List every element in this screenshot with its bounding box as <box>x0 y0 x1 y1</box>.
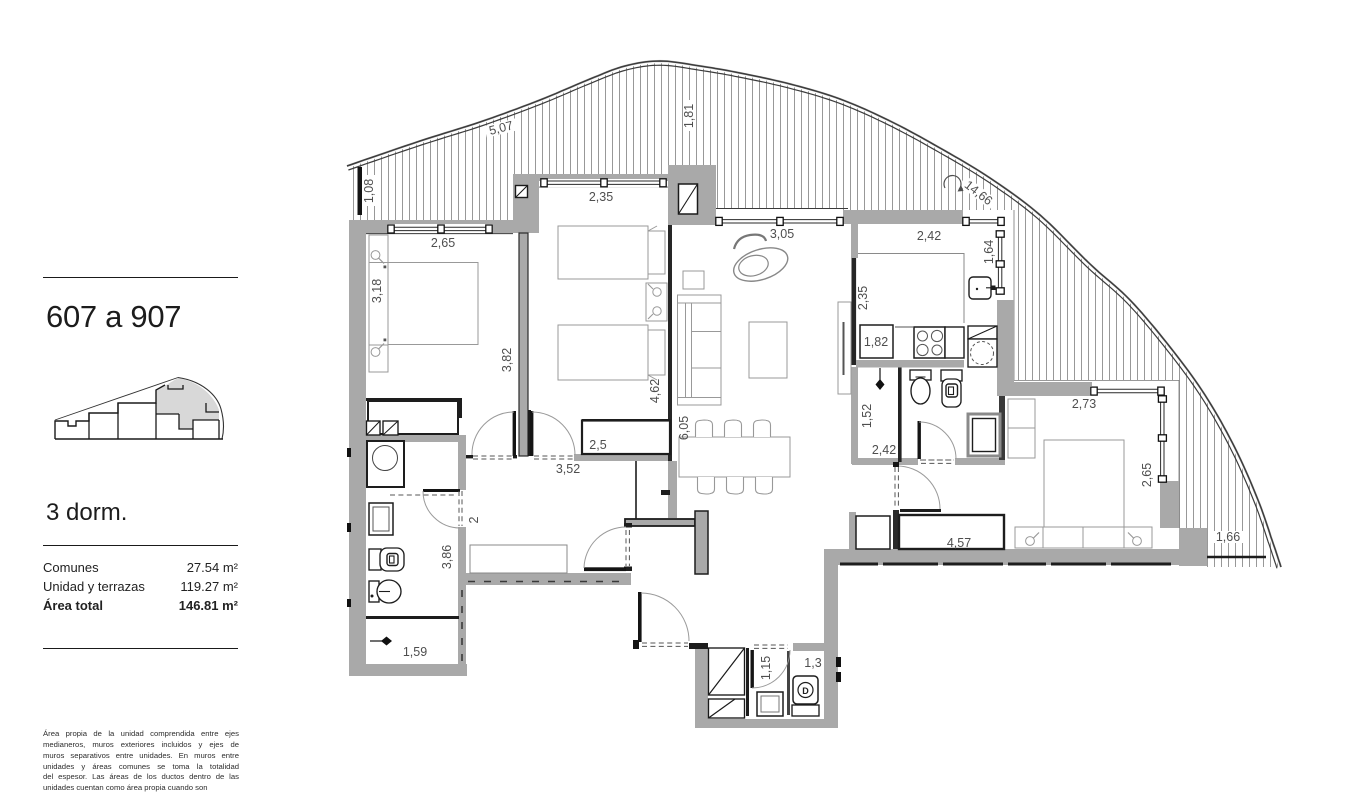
svg-text:2,65: 2,65 <box>431 236 455 250</box>
svg-text:3,52: 3,52 <box>556 462 580 476</box>
svg-text:4,57: 4,57 <box>947 536 971 550</box>
svg-text:6,05: 6,05 <box>677 416 691 440</box>
svg-text:2,73: 2,73 <box>1072 397 1096 411</box>
svg-text:2,65: 2,65 <box>1140 463 1154 487</box>
svg-text:3,86: 3,86 <box>440 545 454 569</box>
svg-text:2,5: 2,5 <box>589 438 606 452</box>
svg-text:2,35: 2,35 <box>856 286 870 310</box>
svg-text:1,08: 1,08 <box>362 179 376 203</box>
svg-text:2: 2 <box>467 516 481 523</box>
svg-text:2,35: 2,35 <box>589 190 613 204</box>
svg-text:3,82: 3,82 <box>500 348 514 372</box>
svg-text:D: D <box>802 686 809 696</box>
svg-text:1,81: 1,81 <box>682 104 696 128</box>
svg-text:1,64: 1,64 <box>982 240 996 264</box>
svg-text:3,05: 3,05 <box>770 227 794 241</box>
svg-text:3,18: 3,18 <box>370 279 384 303</box>
svg-text:1,66: 1,66 <box>1216 530 1240 544</box>
svg-text:4,62: 4,62 <box>648 379 662 403</box>
svg-text:2,42: 2,42 <box>917 229 941 243</box>
svg-text:1,3: 1,3 <box>804 656 821 670</box>
svg-text:2,42: 2,42 <box>872 443 896 457</box>
svg-text:1,52: 1,52 <box>860 404 874 428</box>
svg-text:1,59: 1,59 <box>403 645 427 659</box>
svg-text:1,15: 1,15 <box>759 656 773 680</box>
svg-text:1,82: 1,82 <box>864 335 888 349</box>
